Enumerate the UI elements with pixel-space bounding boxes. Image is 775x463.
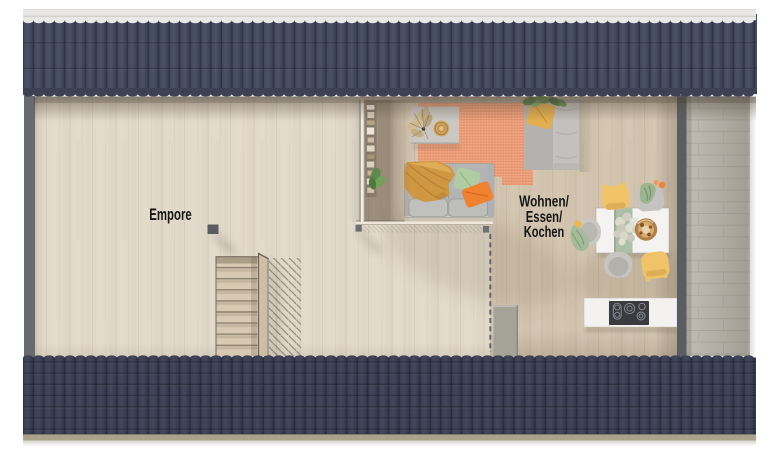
svg-text:Wohnen/: Wohnen/ [519, 193, 569, 210]
svg-text:Empore: Empore [149, 205, 192, 224]
svg-text:Kochen: Kochen [524, 224, 565, 241]
